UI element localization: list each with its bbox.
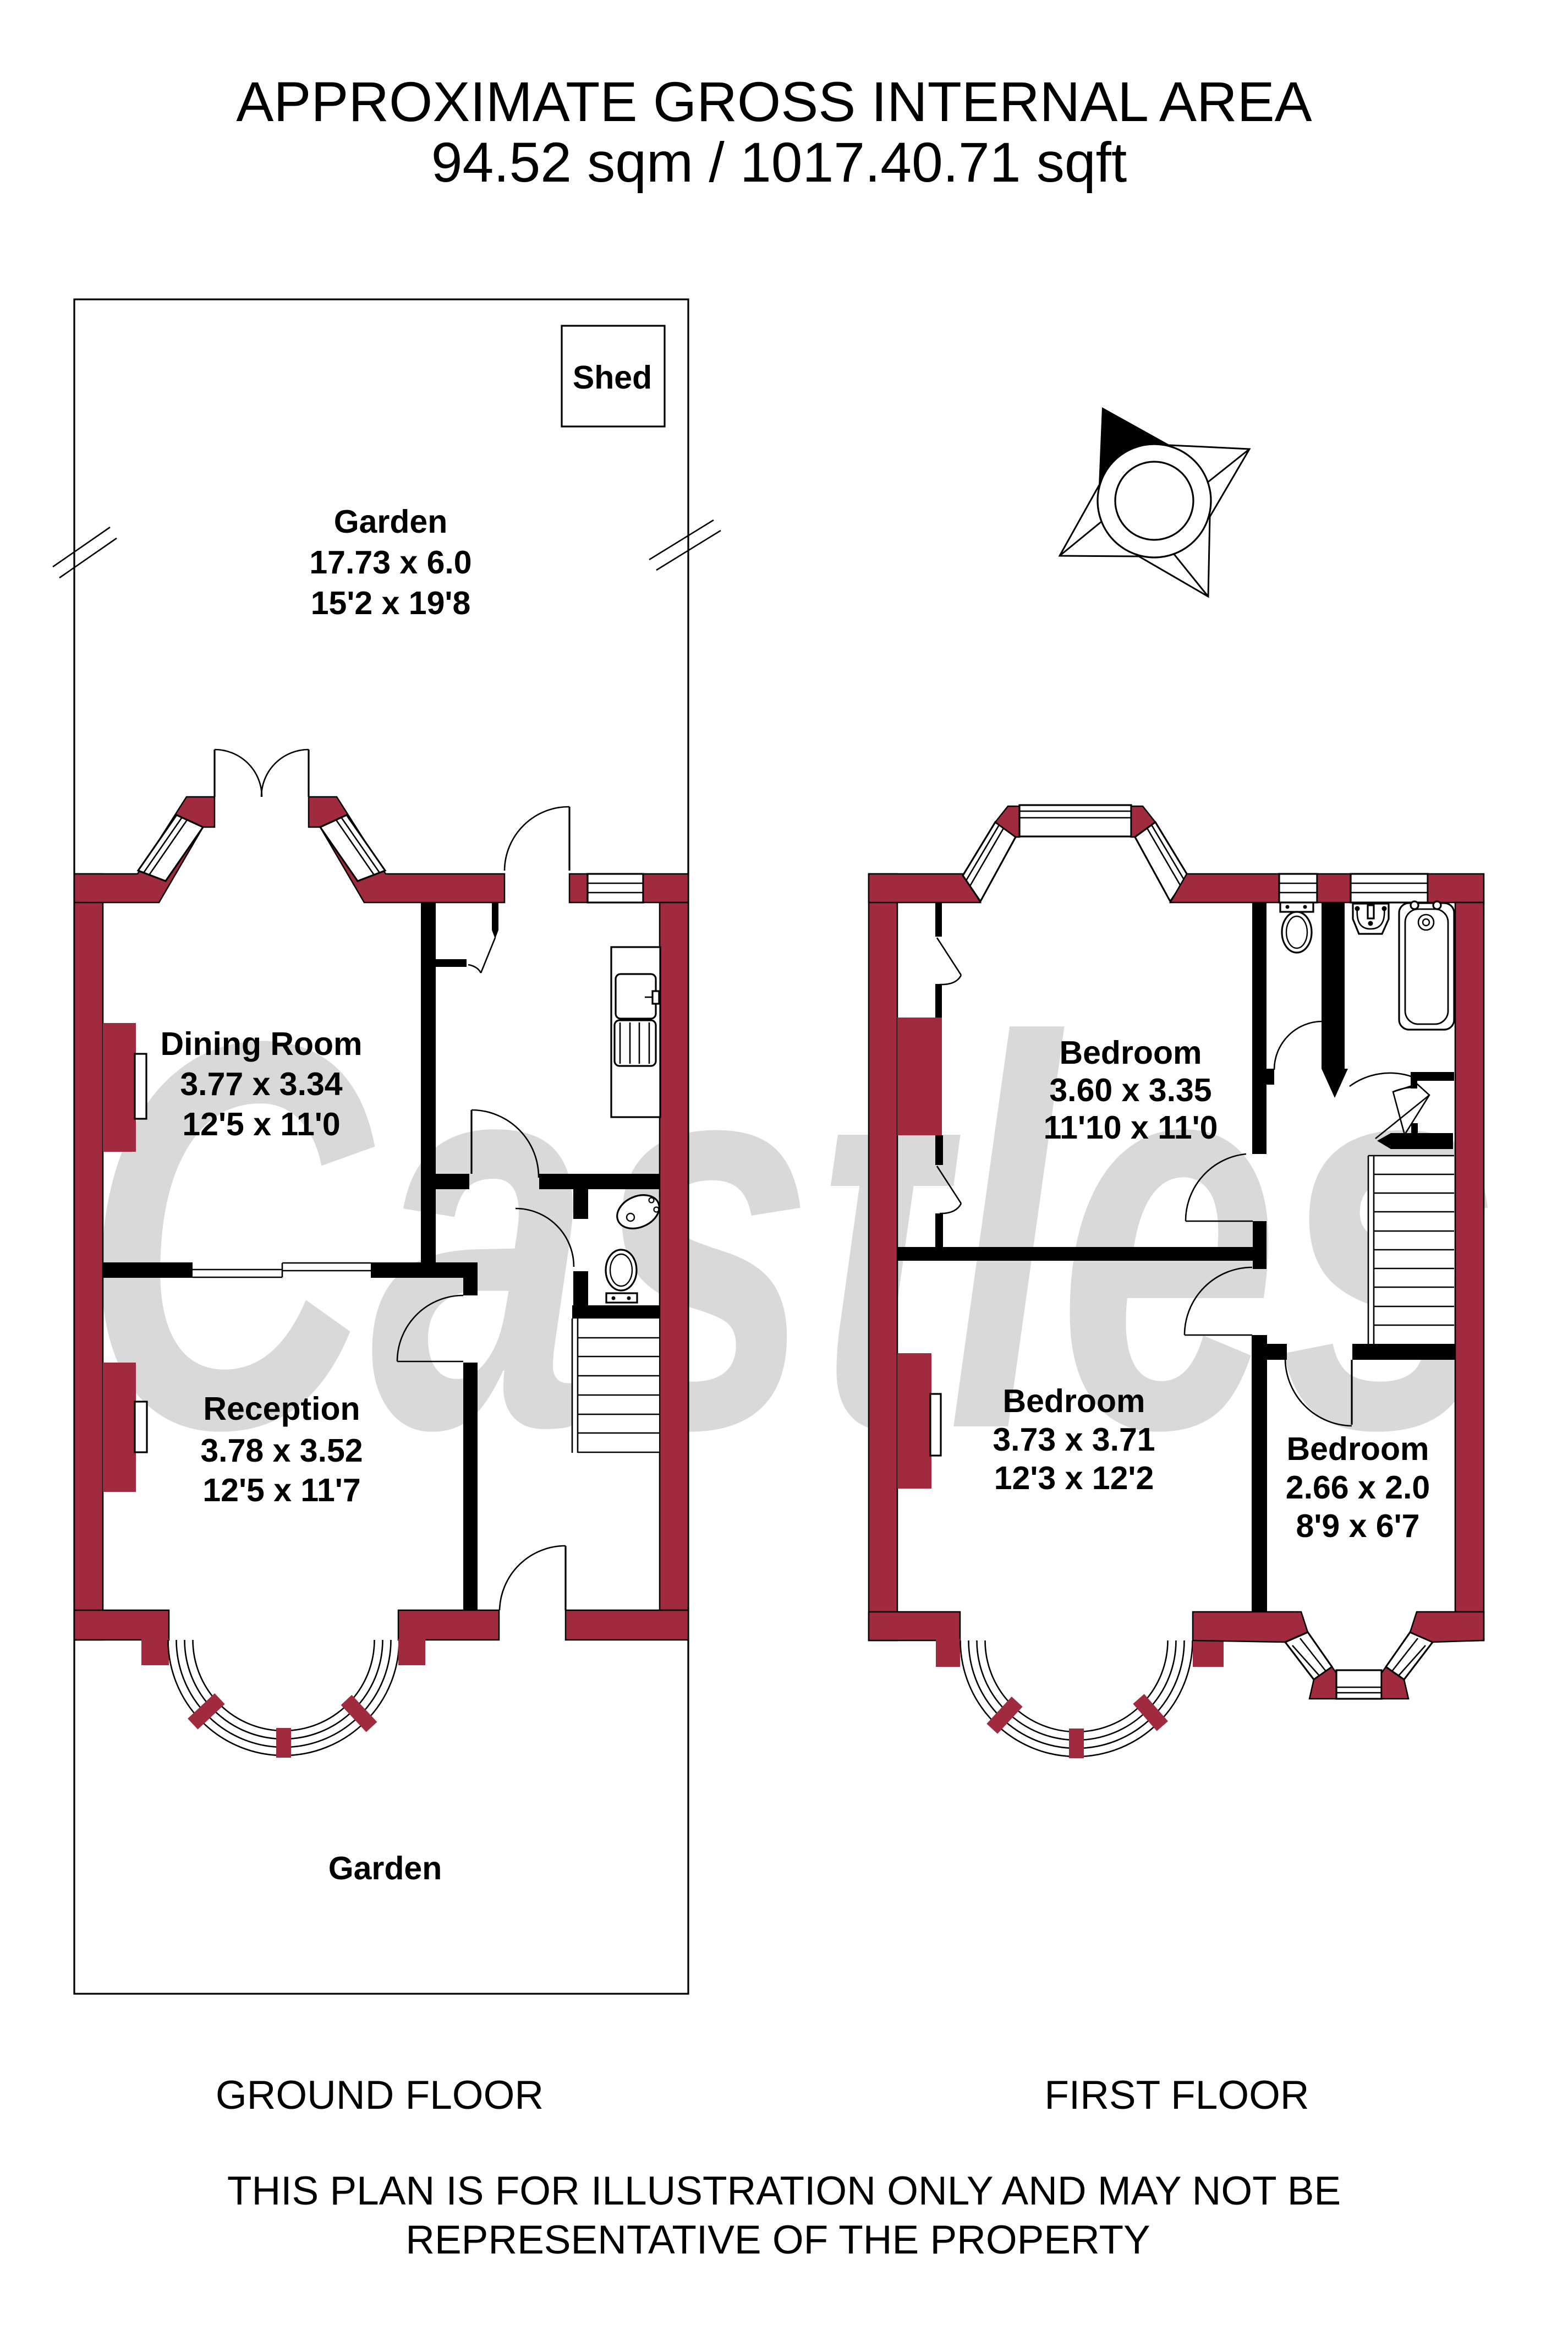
svg-text:Garden: Garden [328,1850,442,1886]
svg-text:Shed: Shed [573,359,652,396]
svg-text:Bedroom: Bedroom [1287,1431,1429,1467]
svg-text:REPRESENTATIVE OF THE PROPERTY: REPRESENTATIVE OF THE PROPERTY [405,2218,1150,2262]
svg-text:2.66 x 2.0: 2.66 x 2.0 [1286,1469,1430,1506]
svg-text:12'5 x 11'0: 12'5 x 11'0 [182,1106,340,1142]
svg-text:Reception: Reception [203,1391,360,1427]
svg-text:12'5 x 11'7: 12'5 x 11'7 [202,1472,360,1508]
svg-text:94.52 sqm / 1017.40.71 sqft: 94.52 sqm / 1017.40.71 sqft [431,131,1127,194]
svg-text:FIRST FLOOR: FIRST FLOOR [1044,2073,1309,2118]
svg-text:Bedroom: Bedroom [1060,1035,1202,1071]
svg-text:APPROXIMATE GROSS INTERNAL ARE: APPROXIMATE GROSS INTERNAL AREA [236,70,1312,133]
svg-text:15'2 x 19'8: 15'2 x 19'8 [311,585,471,621]
svg-text:17.73 x 6.0: 17.73 x 6.0 [309,544,472,581]
svg-text:GROUND FLOOR: GROUND FLOOR [216,2073,544,2118]
svg-text:11'10 x 11'0: 11'10 x 11'0 [1044,1109,1218,1146]
svg-text:12'3 x 12'2: 12'3 x 12'2 [994,1460,1154,1496]
svg-text:8'9 x 6'7: 8'9 x 6'7 [1296,1508,1420,1544]
svg-text:Dining Room: Dining Room [160,1026,362,1062]
svg-text:3.60 x 3.35: 3.60 x 3.35 [1049,1072,1211,1108]
svg-text:THIS PLAN IS FOR ILLUSTRATION: THIS PLAN IS FOR ILLUSTRATION ONLY AND M… [227,2169,1341,2213]
svg-text:3.73 x 3.71: 3.73 x 3.71 [993,1421,1155,1458]
svg-text:Garden: Garden [334,504,448,540]
svg-text:3.77 x 3.34: 3.77 x 3.34 [180,1066,342,1102]
svg-text:3.78 x 3.52: 3.78 x 3.52 [200,1432,363,1469]
svg-text:Bedroom: Bedroom [1003,1383,1145,1419]
